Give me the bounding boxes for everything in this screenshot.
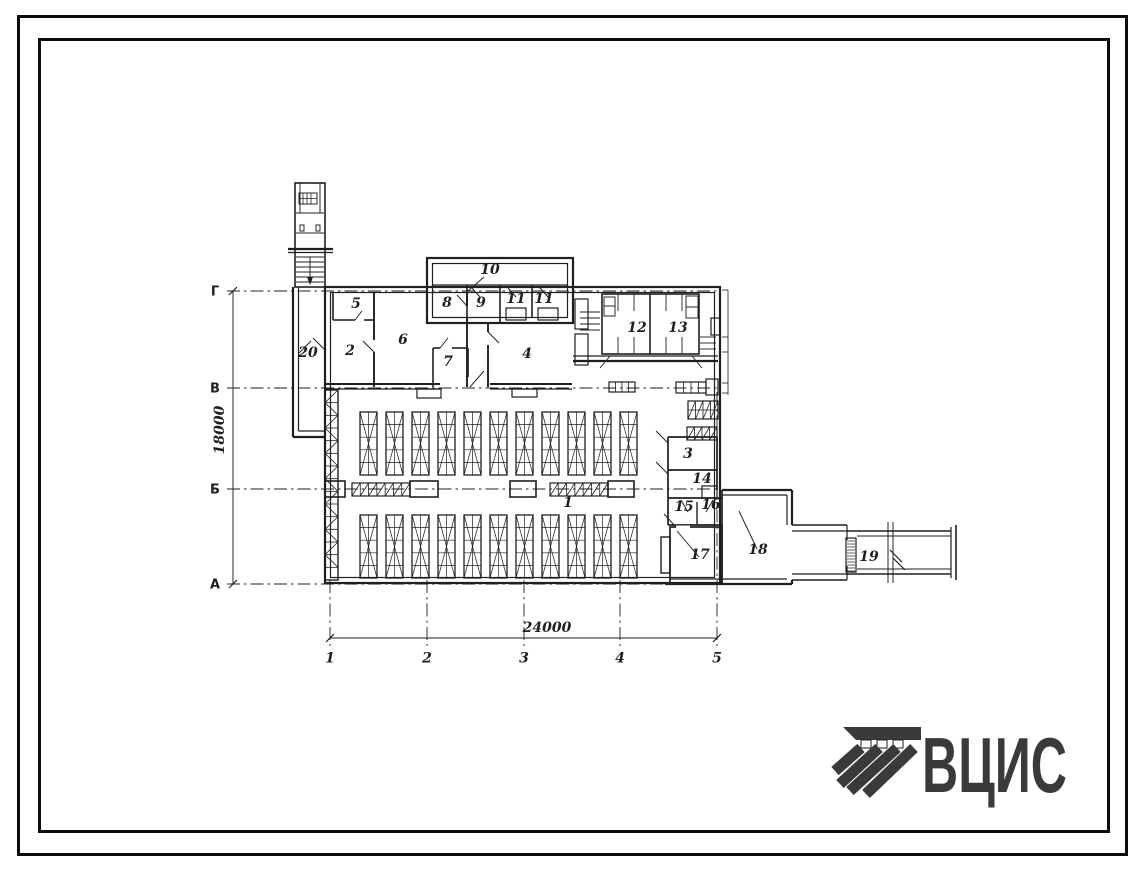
- plan-line: [352, 483, 360, 496]
- plan-line: [325, 466, 338, 479]
- dimension-18000: 18000: [212, 405, 228, 454]
- plan-line: [325, 542, 338, 555]
- room-label-17: 17: [690, 547, 710, 563]
- stall: [568, 515, 585, 578]
- room-label-18: 18: [748, 542, 768, 558]
- room-label-14: 14: [692, 471, 711, 487]
- equipment-strips: [609, 290, 728, 440]
- plan-line: [325, 517, 338, 530]
- stall: [438, 412, 455, 475]
- stall: [360, 412, 377, 475]
- plan-line: [325, 504, 338, 517]
- plan-line: [325, 415, 338, 428]
- plan-line: [360, 483, 368, 496]
- stall: [542, 515, 559, 578]
- room-label-1: 1: [563, 495, 573, 511]
- axis-label-В: В: [210, 382, 220, 397]
- stall: [568, 412, 585, 475]
- plan-line: [377, 483, 385, 496]
- stall: [412, 515, 429, 578]
- axis-label-Г: Г: [211, 285, 219, 300]
- room-label-10: 10: [480, 262, 500, 278]
- corridor-20-walls: [293, 287, 325, 437]
- plan-line: [600, 483, 608, 496]
- drawing-sheet: ГВБА12345 123456789101111121314151617181…: [0, 0, 1139, 869]
- axis-label-2: 2: [421, 651, 432, 667]
- room-label-11: 11: [506, 291, 525, 307]
- room-label-4: 4: [522, 346, 532, 362]
- stall: [386, 515, 403, 578]
- left-hatched-wall: [325, 390, 345, 580]
- stall: [490, 412, 507, 475]
- plan-line: [325, 403, 338, 416]
- stall: [438, 515, 455, 578]
- stall: [464, 515, 481, 578]
- plan-line: [385, 483, 393, 496]
- room-label-13: 13: [668, 320, 688, 336]
- stall: [516, 412, 533, 475]
- axis-label-5: 5: [712, 651, 722, 667]
- plan-line: [702, 427, 710, 440]
- axis-label-Б: Б: [210, 483, 220, 498]
- room-label-7: 7: [443, 354, 453, 370]
- stall: [594, 515, 611, 578]
- stair-tower: [288, 183, 333, 287]
- room-label-9: 9: [476, 295, 486, 311]
- plan-line: [325, 529, 338, 542]
- stall: [464, 412, 481, 475]
- logo: ВЦИС: [835, 721, 1067, 809]
- axis-label-4: 4: [615, 651, 625, 667]
- stall: [542, 412, 559, 475]
- stall: [386, 412, 403, 475]
- room-label-15: 15: [674, 499, 693, 515]
- stall: [360, 515, 377, 578]
- stall: [412, 412, 429, 475]
- room-label-11: 11: [534, 291, 553, 307]
- plan-line: [325, 441, 338, 454]
- stall: [490, 515, 507, 578]
- plan-line: [583, 483, 591, 496]
- plan-line: [325, 390, 338, 403]
- plan-line: [695, 427, 703, 440]
- axis-label-3: 3: [519, 651, 529, 667]
- room-label-3: 3: [683, 446, 693, 462]
- room-label-12: 12: [627, 320, 647, 336]
- plan-line: [550, 483, 558, 496]
- room-label-8: 8: [442, 295, 452, 311]
- plan-line: [393, 483, 401, 496]
- plan-line: [325, 453, 338, 466]
- plan-line: [325, 555, 338, 568]
- room-label-19: 19: [859, 549, 879, 565]
- plan-line: [591, 483, 599, 496]
- plan-line: [687, 427, 695, 440]
- plan-line: [369, 483, 377, 496]
- dimension-24000: 24000: [522, 620, 572, 636]
- room-label-16: 16: [701, 497, 721, 513]
- room10-leader-line: [468, 277, 484, 291]
- plan-line: [325, 428, 338, 441]
- plan-line: [402, 483, 410, 496]
- stall: [620, 412, 637, 475]
- logo-emblem: [835, 727, 921, 794]
- stall: [516, 515, 533, 578]
- room-label-6: 6: [398, 332, 408, 348]
- axis-label-А: А: [210, 578, 220, 593]
- blueprint-canvas: ГВБА12345 123456789101111121314151617181…: [0, 0, 1139, 869]
- stair-direction-arrow: [307, 277, 313, 285]
- room-label-20: 20: [297, 345, 318, 361]
- room-label-2: 2: [344, 343, 355, 359]
- axis-label-1: 1: [325, 651, 335, 667]
- stall: [620, 515, 637, 578]
- room-label-5: 5: [351, 296, 361, 312]
- plan-line: [710, 427, 718, 440]
- stall: [594, 412, 611, 475]
- plan-line: [575, 483, 583, 496]
- logo-text: ВЦИС: [922, 721, 1067, 809]
